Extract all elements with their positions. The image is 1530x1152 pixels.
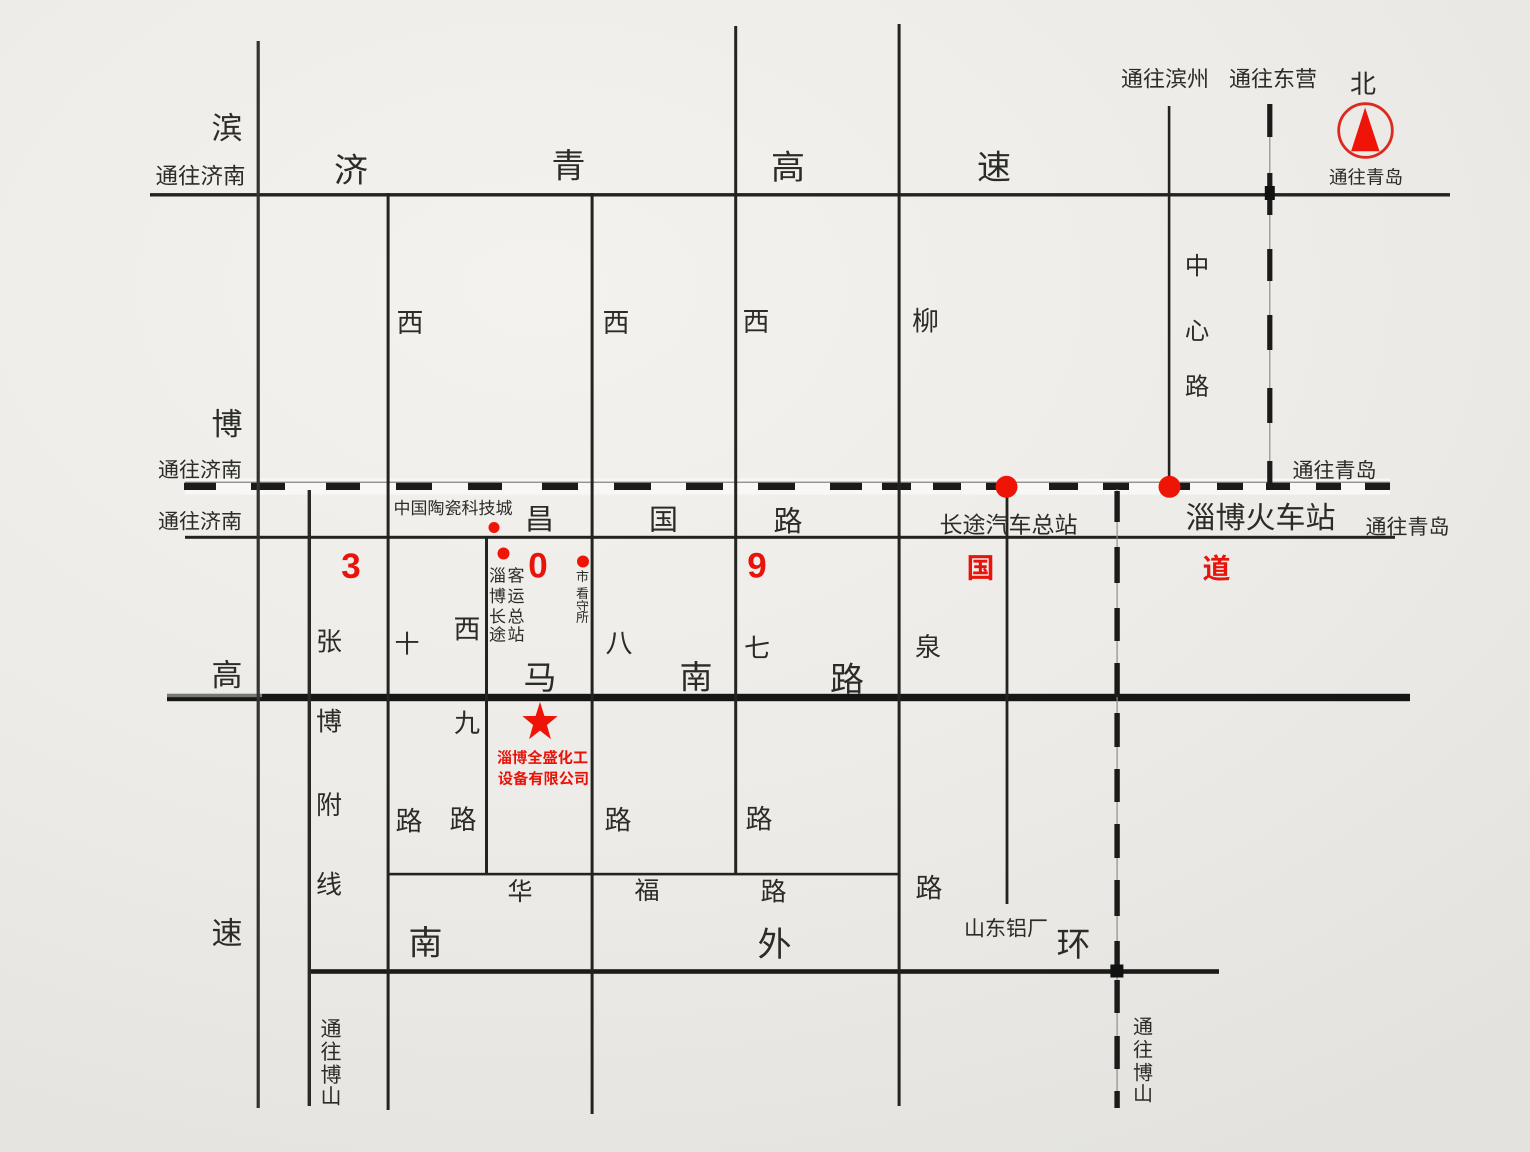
svg-text:3: 3 [341,547,360,586]
svg-text:0: 0 [528,547,547,586]
svg-text:9: 9 [747,547,766,586]
